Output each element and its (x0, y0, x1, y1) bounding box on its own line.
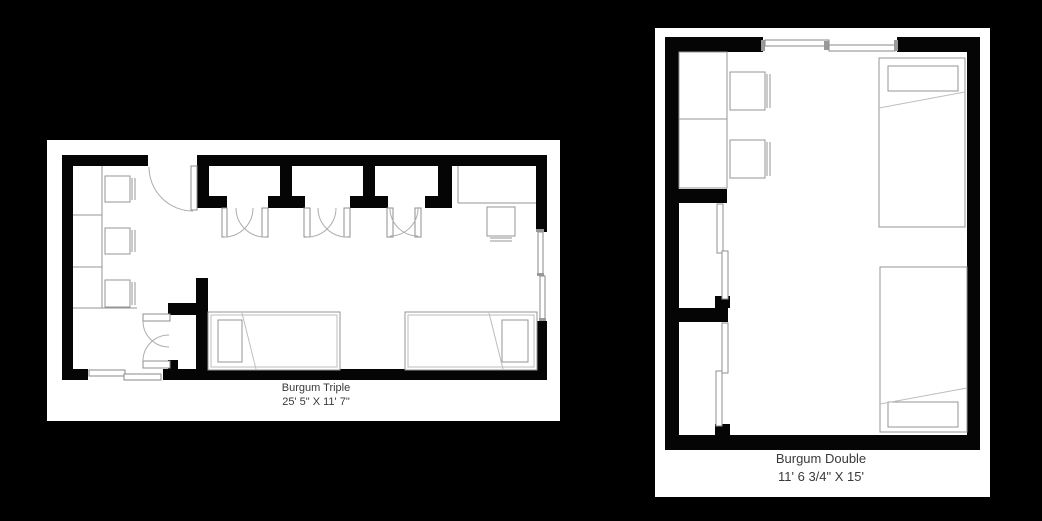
door-swing-arc (143, 335, 169, 361)
door-leaf (304, 208, 310, 237)
desk-pair (679, 52, 727, 188)
wall-segment (665, 435, 980, 450)
wall-segment (168, 303, 208, 315)
window-pane (829, 45, 895, 51)
chair (730, 140, 770, 178)
wall-segment (665, 37, 679, 450)
plan-dimensions-triple: 25' 5" X 11' 7" (282, 397, 349, 408)
pillow (502, 320, 528, 362)
door-leaf (222, 208, 227, 237)
entry-door (149, 166, 197, 211)
plan-dimensions-double: 11' 6 3/4" X 15' (778, 470, 864, 483)
chair (487, 207, 515, 241)
wall-segment (62, 369, 88, 380)
desk-outline (679, 52, 727, 188)
door-leaf (344, 208, 350, 237)
closet-sliding-door (717, 204, 728, 299)
plan-title-triple: Burgum Triple (282, 383, 350, 394)
wall-segment (438, 166, 452, 208)
chair-seat (730, 140, 765, 178)
chair-seat (105, 228, 130, 254)
chair-seat (105, 280, 130, 307)
window-tick (539, 318, 546, 321)
window-pane (124, 374, 161, 380)
wall-segment (967, 37, 980, 450)
wall-segment (197, 155, 547, 166)
window-pane (540, 276, 545, 319)
closet-bay (304, 208, 350, 237)
wall-segment (425, 196, 439, 208)
door-leaf (143, 314, 170, 321)
chair (105, 176, 135, 202)
window-pane (538, 232, 543, 275)
wall-segment (163, 369, 547, 380)
chair-seat (730, 72, 765, 110)
page-background: Burgum Triple 25' 5" X 11' 7" (0, 0, 1042, 521)
door-swing-arc (149, 167, 193, 211)
chair-seat (105, 176, 130, 202)
door-leaf (262, 208, 268, 237)
floorplan-panel-double: Burgum Double 11' 6 3/4" X 15' (655, 28, 990, 497)
wall-segment (280, 166, 292, 197)
wall-segment (679, 189, 727, 203)
chair (105, 228, 135, 254)
wall-segment (197, 196, 227, 208)
door-leaf (191, 166, 197, 210)
desk-corner (458, 166, 536, 203)
wall-segment (196, 278, 208, 380)
sliding-door-panel (716, 371, 722, 426)
wall-segment (62, 155, 73, 380)
door-swing-arc (236, 208, 265, 237)
sliding-door-panel (717, 204, 723, 253)
floorplan-drawing-double (655, 28, 990, 497)
window-pane (765, 40, 829, 46)
wall-segment (350, 196, 388, 208)
bed (208, 312, 340, 370)
wall-segment (665, 37, 763, 52)
window-top (761, 40, 898, 51)
sliding-door-panel (722, 323, 728, 373)
closet-bay (387, 208, 421, 237)
floorplan-panel-triple: Burgum Triple 25' 5" X 11' 7" (47, 140, 560, 421)
window-right (536, 229, 546, 321)
bed (405, 312, 537, 370)
pillow (888, 402, 958, 427)
floorplan-drawing-triple (47, 140, 560, 421)
wall-segment (536, 155, 547, 232)
bed (880, 267, 967, 432)
window-pane (89, 370, 125, 376)
door-leaf (143, 361, 170, 368)
chair (105, 280, 135, 307)
chair (730, 72, 770, 110)
plan-title-double: Burgum Double (776, 452, 866, 465)
wall-segment (62, 155, 148, 166)
entry-closet-double-doors (143, 314, 170, 368)
door-swing-arc (143, 321, 169, 347)
window-tick (824, 41, 829, 50)
door-swing-arc (224, 208, 253, 237)
wall-segment (665, 308, 728, 322)
pillow (888, 66, 958, 91)
closet-sliding-door (716, 323, 728, 426)
pillow (218, 320, 242, 362)
sliding-door-panel (722, 251, 728, 299)
closet-bay (222, 208, 268, 237)
bed (879, 58, 965, 227)
wall-segment (268, 196, 305, 208)
window-tick (894, 40, 898, 51)
window-bottom (89, 370, 161, 380)
wall-segment (363, 166, 375, 197)
window-tick (761, 40, 765, 51)
chair-seat (487, 207, 515, 236)
